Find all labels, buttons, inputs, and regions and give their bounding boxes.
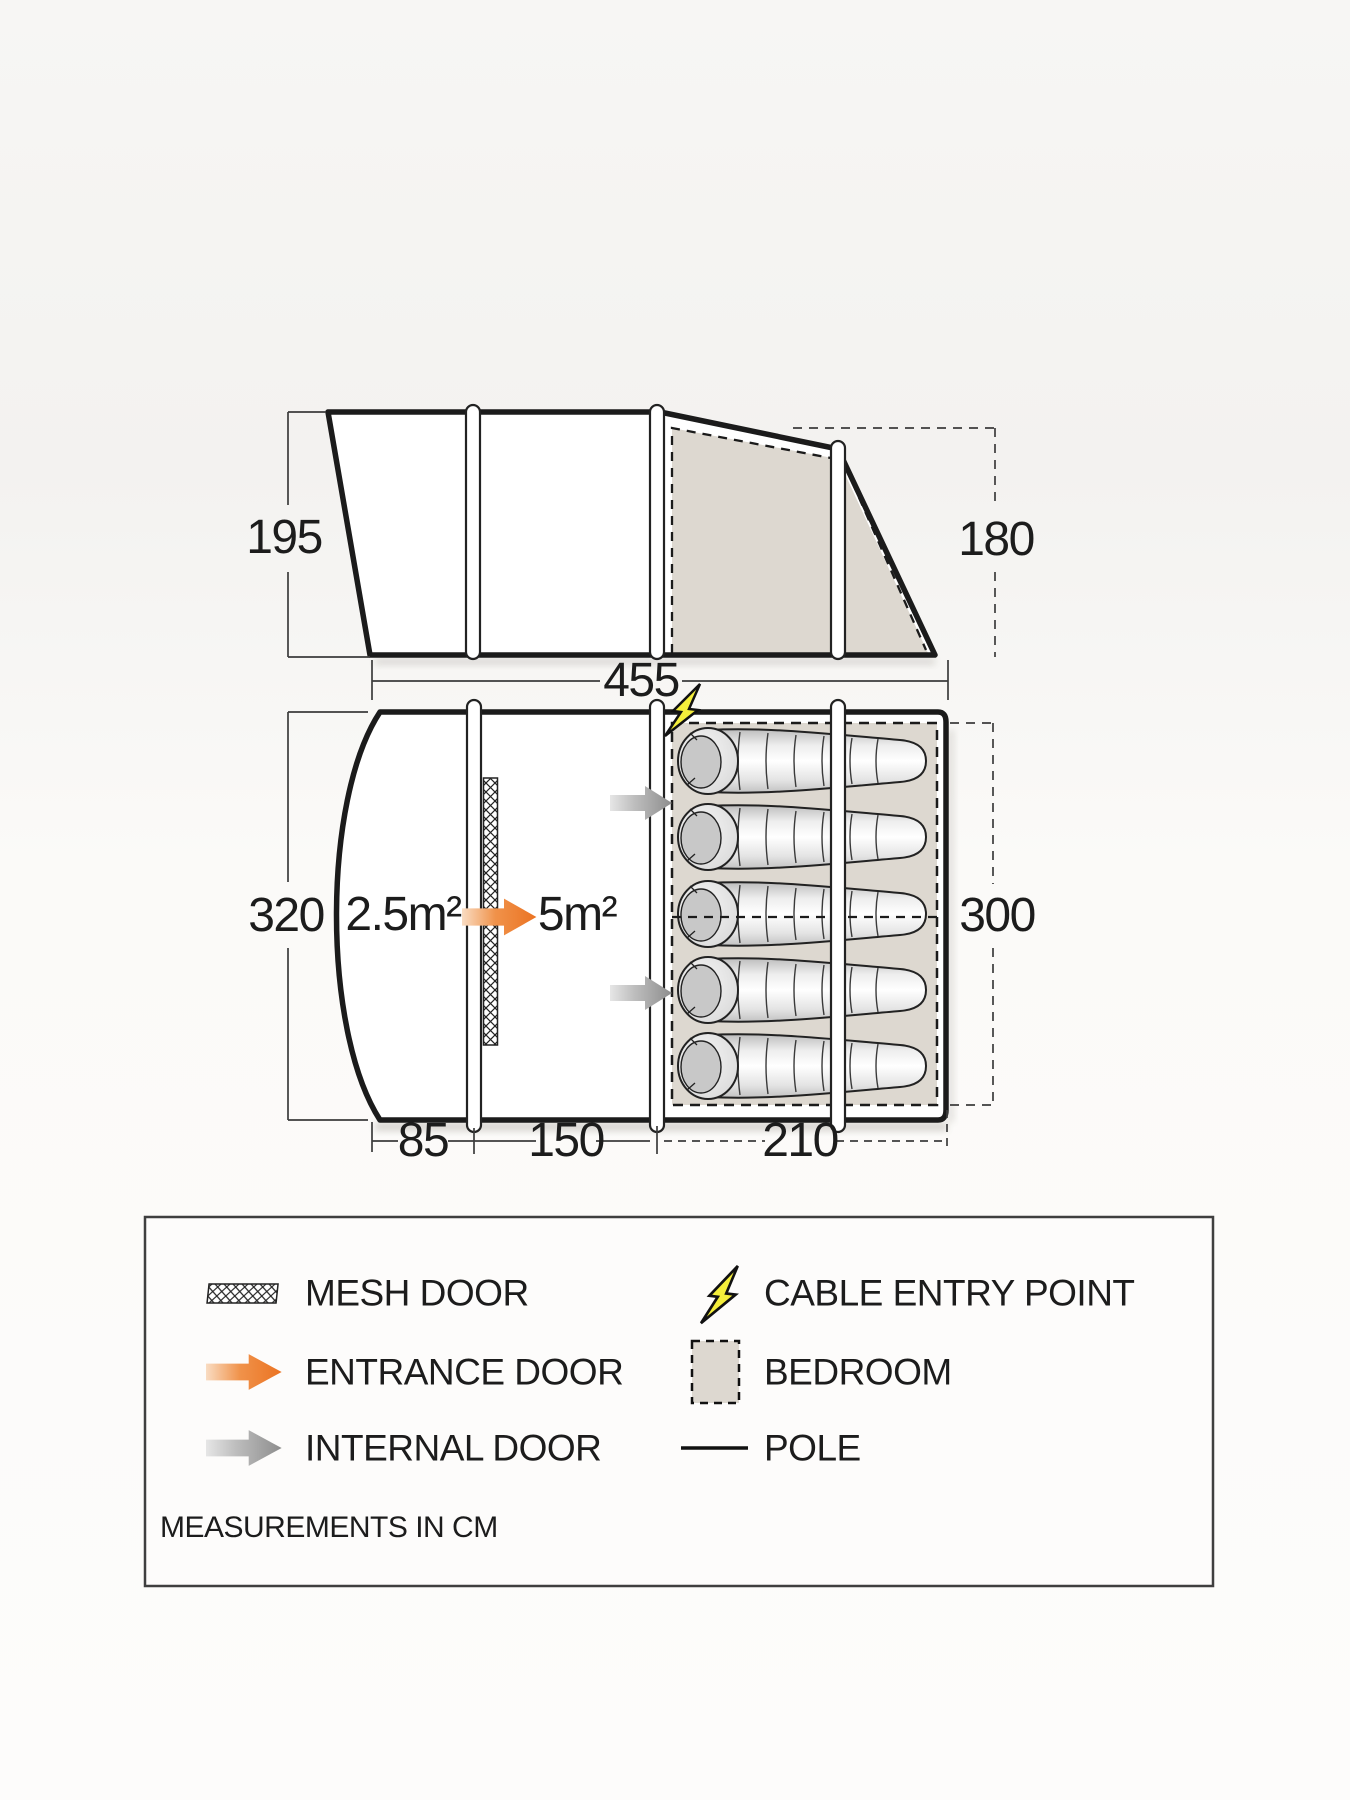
sleeping-bags	[678, 728, 926, 1099]
side-height-left-label: 195	[246, 514, 322, 562]
mesh-door-pattern	[207, 1284, 278, 1303]
pole-icon	[650, 700, 664, 1132]
bedroom-depth-label: 300	[959, 892, 1035, 940]
legend-pole-label: POLE	[764, 1430, 861, 1467]
porch-width-label: 85	[398, 1117, 448, 1165]
porch-area-label: 2.5m²	[345, 891, 460, 939]
living-width-label: 150	[528, 1117, 604, 1165]
plan-depth-label: 320	[248, 892, 324, 940]
legend-mesh-door-label: MESH DOOR	[305, 1275, 529, 1312]
pole-icon	[466, 405, 480, 659]
side-view-bedroom-shade	[672, 428, 928, 653]
legend-cable-entry-label: CABLE ENTRY POINT	[764, 1275, 1135, 1312]
legend-note: MEASUREMENTS IN CM	[160, 1513, 498, 1543]
side-height-right-label: 180	[958, 516, 1034, 564]
bedroom-width-label: 210	[762, 1117, 838, 1165]
tent-spec-diagram: 195 180 455 320 300 2.5m² 5m² 85 150 210…	[0, 0, 1350, 1800]
pole-icon	[831, 441, 845, 659]
legend-entrance-door-label: ENTRANCE DOOR	[305, 1354, 623, 1391]
side-width-label: 455	[603, 657, 679, 705]
pole-icon	[831, 700, 845, 1132]
living-area-label: 5m²	[538, 891, 616, 939]
legend-internal-door-label: INTERNAL DOOR	[305, 1430, 601, 1467]
bedroom-swatch-icon	[692, 1341, 739, 1403]
legend-bedroom-label: BEDROOM	[764, 1354, 952, 1391]
pole-icon	[650, 405, 664, 659]
